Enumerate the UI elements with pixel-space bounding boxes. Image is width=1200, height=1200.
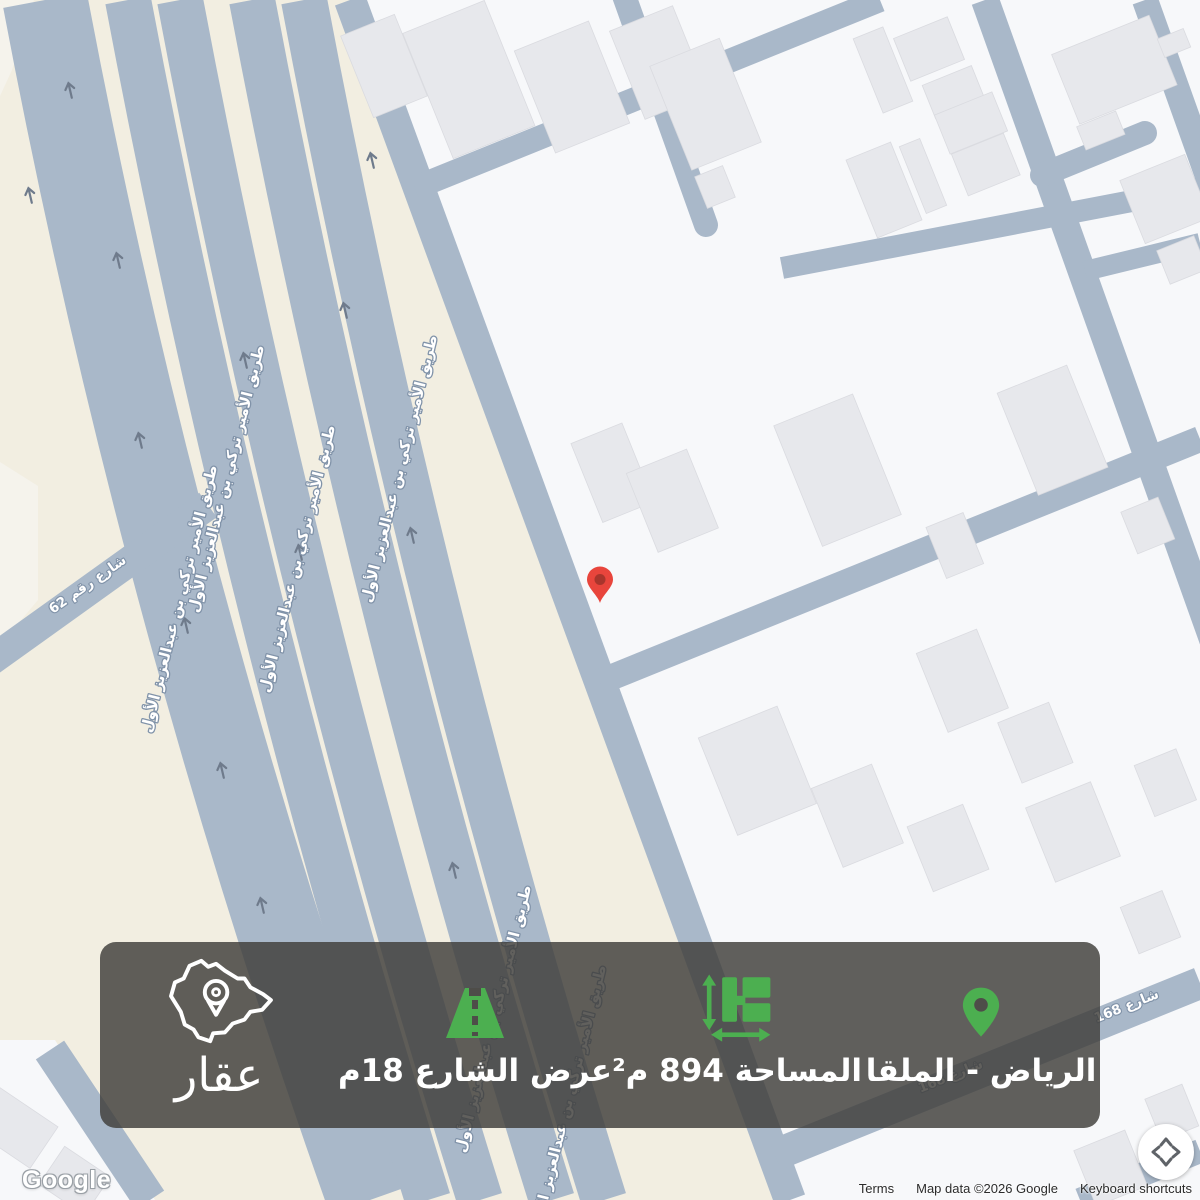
area-dimensions-icon	[697, 968, 777, 1044]
location-pin-icon	[952, 968, 1010, 1044]
pan-arrows-icon	[1138, 1124, 1194, 1180]
location-section: الرياض - الملقا	[862, 942, 1100, 1128]
terms-link[interactable]: Terms	[859, 1181, 894, 1196]
street-width-label: عرض الشارع 18م	[338, 1056, 612, 1087]
google-logo[interactable]: Google	[22, 1166, 111, 1195]
map-data-attribution: Map data ©2026 Google	[916, 1181, 1058, 1196]
map-screenshot: طريق الأمير تركي بن عبدالعزيز الأول طريق…	[0, 0, 1200, 1200]
map-attribution: Terms Map data ©2026 Google Keyboard sho…	[859, 1181, 1192, 1196]
keyboard-shortcuts-link[interactable]: Keyboard shortcuts	[1080, 1181, 1192, 1196]
area-section: المساحة 894 م²	[612, 942, 862, 1128]
brand-name: عقار	[175, 1052, 264, 1099]
area-label: المساحة 894 م²	[612, 1056, 862, 1087]
saudi-map-pin-logo-icon	[157, 954, 281, 1050]
street-width-section: عرض الشارع 18م	[338, 942, 612, 1128]
brand-section: عقار	[100, 942, 338, 1128]
road-width-icon	[439, 968, 511, 1044]
location-label: الرياض - الملقا	[866, 1056, 1097, 1087]
property-info-banner: الرياض - الملقا	[100, 942, 1100, 1128]
pan-control[interactable]	[1138, 1124, 1194, 1180]
